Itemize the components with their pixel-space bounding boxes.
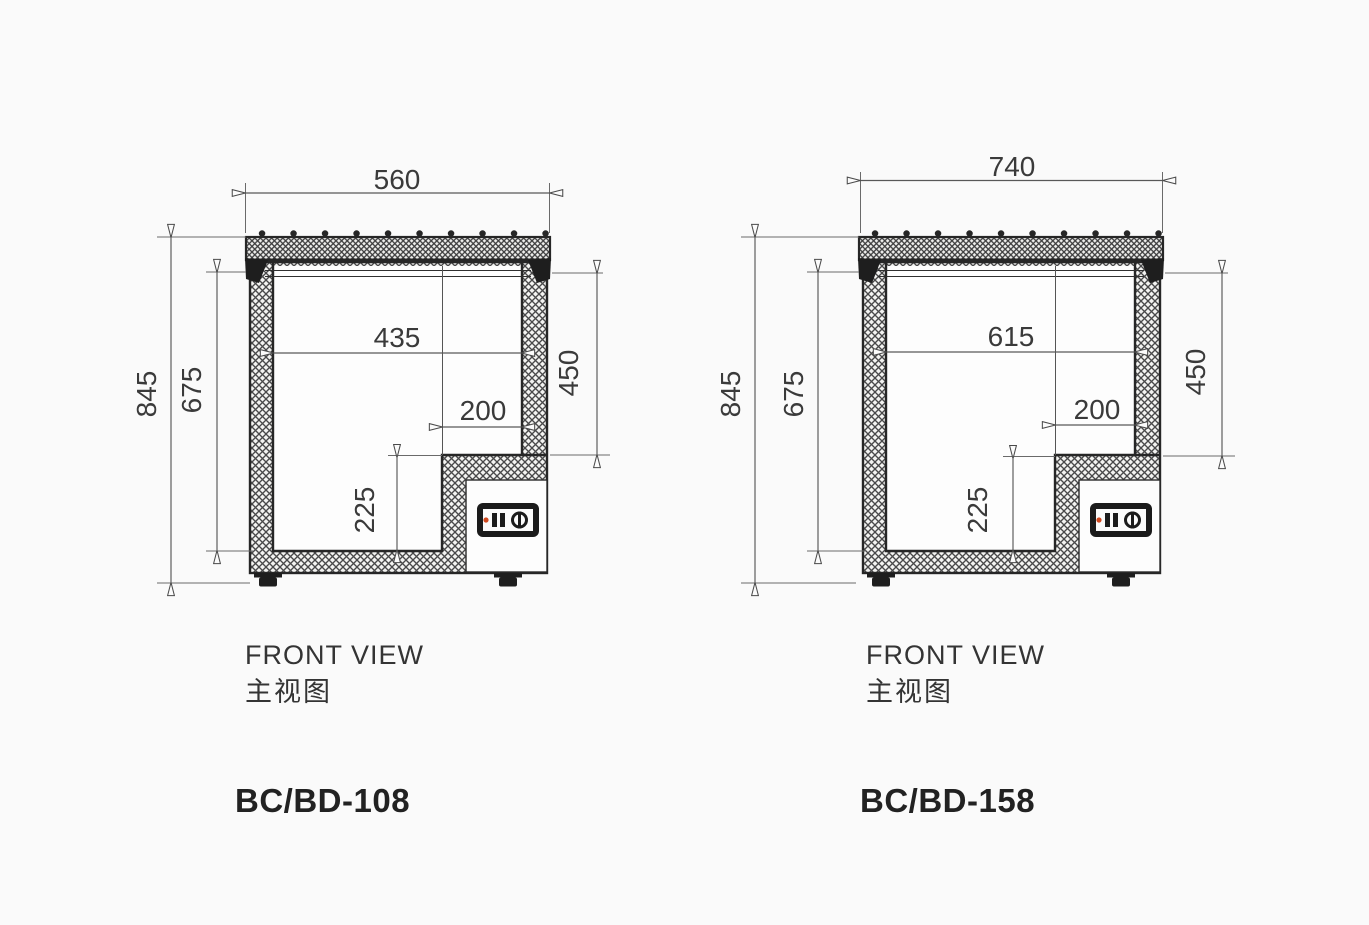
dim-overall-width-158: 740 [861,151,1163,233]
power-indicator-158 [1096,517,1101,522]
dim-inner-depth-108: 675 [176,272,253,551]
dim-value-overall-width-108: 560 [374,164,421,195]
feet-158 [867,573,1135,587]
dim-value-right-inner-depth-158: 450 [1180,349,1211,396]
control-panel-158 [1090,503,1152,537]
dim-value-inner-depth-108: 675 [176,367,207,414]
view-label-en-108: FRONT VIEW [245,640,424,670]
view-label-zh-108: 主视图 [245,677,332,707]
technical-drawing-sheet: 560 845 675 435 200 450 [0,0,1369,925]
control-panel-108 [477,503,539,537]
model-label-158: BC/BD-158 [860,782,1035,819]
view-label-en-158: FRONT VIEW [866,640,1045,670]
dim-value-step-width-158: 200 [1074,394,1121,425]
dim-value-overall-width-158: 740 [989,151,1036,182]
drawing-bc-bd-108: 560 845 675 435 200 450 [131,164,610,819]
dim-right-inner-depth-158: 450 [1163,273,1235,456]
dim-value-step-width-108: 200 [460,395,507,426]
feet-108 [254,573,522,587]
dim-value-inner-width-158: 615 [988,321,1035,352]
dim-value-step-height-158: 225 [962,487,993,534]
dim-value-right-inner-depth-108: 450 [553,350,584,397]
dim-value-inner-width-108: 435 [374,322,421,353]
dim-inner-depth-158: 675 [778,272,866,551]
power-indicator-108 [483,517,488,522]
view-label-zh-158: 主视图 [866,677,953,707]
dim-value-overall-height-158: 845 [715,371,746,418]
freezer-dimension-diagram: 560 845 675 435 200 450 [0,0,1369,925]
dim-value-step-height-108: 225 [349,487,380,534]
dim-value-inner-depth-158: 675 [778,371,809,418]
model-label-108: BC/BD-108 [235,782,410,819]
dim-value-overall-height-108: 845 [131,371,162,418]
dim-right-inner-depth-108: 450 [550,273,610,455]
dim-overall-width-108: 560 [246,164,550,233]
drawing-bc-bd-158: 740 845 675 615 200 450 [715,151,1235,819]
